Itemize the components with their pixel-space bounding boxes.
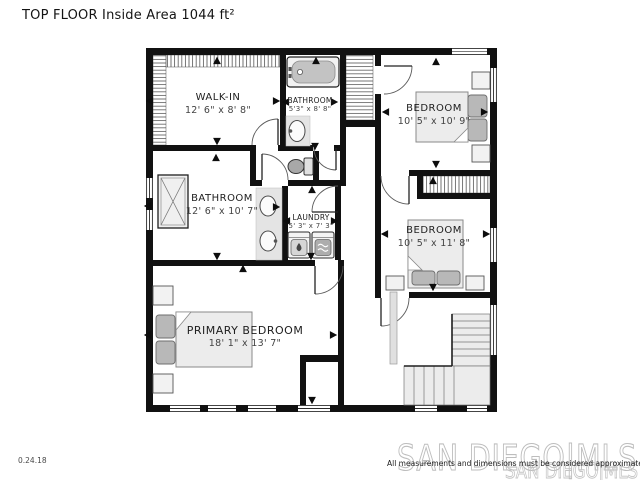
washer [288, 232, 310, 258]
room-dims: 18' 1" x 13' 7" [187, 338, 304, 350]
arrow-down-icon [213, 138, 221, 145]
room-dims: 12' 6" x 8' 8" [185, 105, 251, 117]
arrow-left-icon [381, 230, 388, 238]
door-walk-in [252, 119, 278, 145]
window [248, 405, 276, 412]
door-bedroom-right [381, 176, 409, 204]
room-dims: 10' 5" x 11' 8" [398, 238, 470, 250]
arrow-down-icon [308, 397, 316, 404]
window [490, 228, 497, 262]
door-laundry [312, 186, 338, 212]
room-name: BATHROOM [287, 96, 332, 105]
walkin-hatch-top [166, 55, 280, 67]
window [415, 405, 437, 412]
arrow-right-icon [273, 97, 280, 105]
window [208, 405, 236, 412]
room-name: LAUNDRY [288, 213, 333, 222]
room-dims: 5'3" x 8' 8" [287, 105, 332, 114]
page-title: TOP FLOOR Inside Area 1044 ft² [22, 8, 235, 23]
room-name: BEDROOM [398, 225, 470, 238]
door-wc [262, 154, 288, 180]
footer-date: 0.24.18 [18, 456, 47, 465]
arrow-right-icon [483, 230, 490, 238]
room-dims: 5' 3" x 7' 3" [288, 222, 333, 231]
toilet [288, 158, 313, 175]
arrow-down-icon [432, 161, 440, 168]
dryer [312, 232, 334, 258]
arrow-down-icon [213, 253, 221, 260]
window [170, 405, 200, 412]
window [146, 178, 153, 198]
window [298, 405, 330, 412]
floor-plan-page: SAN DIEGO|MLS SAN DIEGO|MLS [0, 0, 640, 480]
staircase [390, 292, 490, 405]
window [146, 210, 153, 230]
room-label-bedroom-right: BEDROOM 10' 5" x 11' 8" [398, 225, 470, 249]
room-label-bedroom-top-right: BEDROOM 10' 5" x 10' 9" [398, 103, 470, 127]
room-dims: 10' 5" x 10' 9" [398, 116, 470, 128]
window [490, 68, 497, 102]
hall-closet-hatch [346, 55, 373, 120]
arrow-right-icon [330, 331, 337, 339]
window [467, 405, 487, 412]
room-name: WALK-IN [185, 92, 251, 105]
arrow-up-icon [212, 154, 220, 161]
shower [158, 175, 188, 228]
room-label-primary-bedroom: PRIMARY BEDROOM 18' 1" x 13' 7" [187, 324, 304, 350]
stair-railing [390, 292, 397, 364]
sink [286, 116, 310, 146]
room-label-walk-in: WALK-IN 12' 6" x 8' 8" [185, 92, 251, 116]
arrow-up-icon [308, 186, 316, 193]
room-name: BATHROOM [186, 193, 258, 206]
room-label-bathroom-left: BATHROOM 12' 6" x 10' 7" [186, 193, 258, 217]
vanity [256, 188, 282, 260]
floor-plan-drawing: SAN DIEGO|MLS SAN DIEGO|MLS [0, 0, 640, 480]
room-name: PRIMARY BEDROOM [187, 324, 304, 338]
door-bedroom-top-right [384, 66, 412, 94]
arrow-up-icon [432, 58, 440, 65]
room-name: BEDROOM [398, 103, 470, 116]
window [490, 305, 497, 355]
arrow-left-icon [382, 108, 389, 116]
disclaimer-text: All measurements and dimensions must be … [387, 459, 640, 468]
room-label-bathroom-top: BATHROOM 5'3" x 8' 8" [287, 96, 332, 114]
room-dims: 12' 6" x 10' 7" [186, 206, 258, 218]
window [452, 48, 487, 55]
bathtub [287, 57, 339, 87]
walkin-hatch-left [153, 55, 166, 145]
room-label-laundry: LAUNDRY 5' 3" x 7' 3" [288, 213, 333, 231]
